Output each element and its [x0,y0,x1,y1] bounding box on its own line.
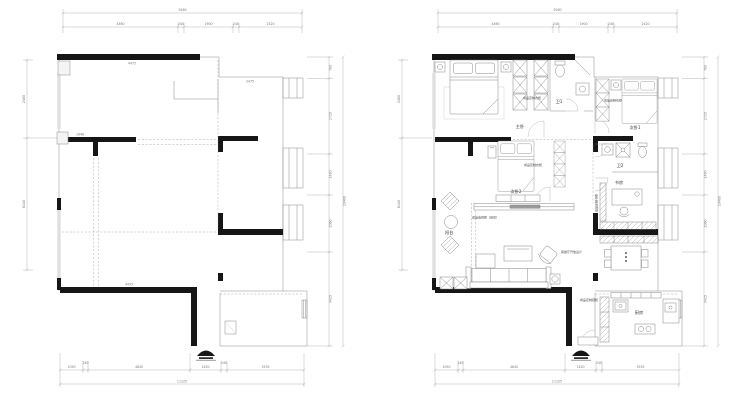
dim-label: 3425 [704,295,708,303]
dim-label: 3425 [329,295,333,303]
plant-icon [441,236,459,254]
dimension-labels: 9260 4460 240 1900 240 2420 1050 240 464… [22,8,347,384]
dashed-beam-lines [62,60,302,294]
balcony: 阳台 [440,192,467,289]
dim-label: 1420 [576,365,584,369]
shoe-cabinet [578,337,598,345]
dim-label: 240 [233,22,239,26]
dim-label: 1490 [704,170,708,178]
interior-dim: 4475 [128,62,136,66]
interior-dim: 1948 [76,133,84,137]
stove [635,324,655,334]
tv-cabinet-annotation: 成品电视柜（悬空） [472,215,499,220]
structure-shell [57,54,307,361]
master-bedroom: 成品定制衣柜 主卧 [435,60,548,130]
wardrobe-annotation: 成品定制衣柜 [524,162,542,167]
round-table [445,216,458,229]
window-seat [496,195,540,202]
dim-label: 240 [596,361,602,365]
living-room: 成品电视柜（悬空） 客餐厅开放设计 [466,204,582,289]
nightstand [501,62,511,72]
room-label-study: 书房 [615,179,623,186]
dim-label: 240 [82,361,88,365]
wardrobe [513,60,527,76]
dim-label: 4460 [491,22,499,26]
dim-label: 2725 [329,112,333,120]
dim-bottom-total: 11125 [177,380,187,384]
wardrobe [554,176,565,188]
washer [440,277,453,289]
dim-bottom-total: 11125 [552,380,562,384]
dining-area [600,236,658,270]
wardrobe [534,77,548,93]
armchair [537,245,559,267]
dim-label: 4640 [135,365,143,369]
dim-label: 1900 [204,22,212,26]
dim-label: 780 [329,65,333,71]
bench [488,146,496,158]
interior-dim: 4435 [125,283,133,287]
dim-label: 3535 [261,365,269,369]
dim-label: 2420 [641,22,649,26]
wardrobe [554,164,565,176]
wardrobe-annotation: 成品定制衣柜 [523,95,541,100]
dim-label: 240 [608,22,614,26]
dim-label: 780 [704,65,708,71]
dim-label: 6140 [22,200,26,208]
layout-note: 客餐厅开放设计 [561,249,582,254]
dim-label: 2480 [397,95,401,103]
dim-label: 2420 [266,22,274,26]
dim-label: 4460 [116,22,124,26]
dim-label: 1420 [201,365,209,369]
dim-right-total: 10480 [343,196,347,206]
kitchen: 厨房 [600,293,679,343]
original-structure-plan: 4475 2475 1948 4435 9260 4460 240 1900 2… [22,8,347,387]
room-label-kitchen: 厨房 [635,309,643,316]
dim-top-total: 9260 [178,8,186,12]
dryer [454,277,467,289]
dim-top-total: 9260 [553,8,561,12]
wardrobe [596,107,609,121]
furnished-layout-plan: 成品定制衣柜 主卧 卫1 成品定制衣柜 次卧1 [397,8,722,387]
wardrobe [534,60,548,76]
bedroom-3: 成品定制衣柜 次卧2 [488,141,565,202]
room-label-bed3: 次卧2 [510,188,521,195]
floor-plan-canvas: 4475 2475 1948 4435 9260 4460 240 1900 2… [0,0,750,401]
room-label-balcony: 阳台 [445,229,453,236]
wardrobe [596,79,609,93]
wardrobe [554,153,565,165]
chaise [476,254,495,268]
dim-label: 2060 [329,219,333,227]
interior-dim: 2475 [246,80,254,84]
dim-label: 2060 [704,219,708,227]
dim-right-total: 10480 [718,196,722,206]
room-label-bath2: 卫2 [617,163,624,168]
dim-label: 2725 [704,112,708,120]
room-label-master: 主卧 [516,123,524,130]
wardrobe [554,141,565,153]
room-label-bath1: 卫1 [556,99,563,104]
pendant-light-icon [625,252,627,262]
dimension-frame [23,9,344,387]
plant-icon [441,192,459,210]
nightstand [435,62,445,72]
interior-structure [57,61,236,334]
shoe-cabinet-annotation: 成品定制鞋柜 [580,297,598,302]
bed [450,60,498,114]
study: 书房 成品定制书柜 [594,179,657,230]
dim-label: 1490 [329,170,333,178]
bathroom-2: 卫2 [602,143,647,168]
dim-label: 4640 [510,365,518,369]
dim-label: 1900 [579,22,587,26]
interior-dimensions: 4475 2475 1948 4435 [76,62,254,287]
dim-label: 1050 [442,365,450,369]
dim-label: 240 [178,22,184,26]
bed [622,79,657,123]
dim-label: 240 [221,361,227,365]
coffee-table [504,246,532,261]
bookcase-annotation: 成品定制书柜 [594,194,599,212]
dim-label: 2480 [22,95,26,103]
dim-label: 240 [553,22,559,26]
nightstand [611,80,621,90]
bathroom-1: 卫1 [555,61,589,104]
room-label-bed2: 次卧1 [629,124,640,131]
dim-label: 240 [457,361,463,365]
wardrobe-annotation: 成品定制衣柜 [604,98,622,103]
dim-label: 6140 [397,200,401,208]
wardrobe [513,77,527,93]
dim-label: 1050 [67,365,75,369]
dim-label: 3535 [636,365,644,369]
tv [510,205,540,208]
